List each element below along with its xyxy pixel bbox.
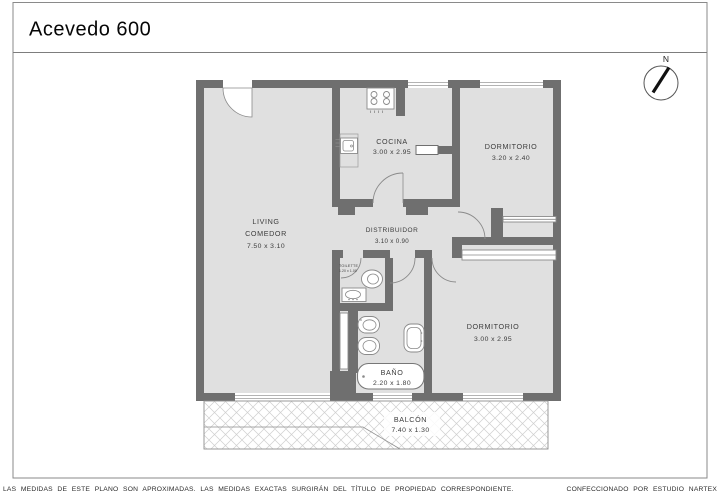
wall-corner-mass bbox=[330, 371, 356, 393]
duct-shaft bbox=[340, 313, 348, 369]
floorplan-page: Acevedo 600 N bbox=[0, 0, 720, 497]
wall-jamb-right bbox=[406, 207, 428, 215]
wall-cocina-dormitorio1 bbox=[452, 88, 460, 207]
compass-circle bbox=[644, 66, 678, 100]
label-dormitorio1-dims: 3.20 x 2.40 bbox=[492, 155, 530, 162]
label-dormitorio1: DORMITORIO bbox=[485, 142, 538, 151]
window-dormitorio2 bbox=[463, 393, 523, 401]
label-living-dims: 7.50 x 3.10 bbox=[247, 243, 285, 250]
toilette-sink bbox=[342, 288, 366, 302]
wall-cocina-south-east bbox=[403, 199, 452, 207]
wall-toilette-bottom bbox=[340, 303, 393, 311]
toilette-wc bbox=[362, 270, 383, 288]
wall-corner-block bbox=[452, 245, 462, 258]
footer-disclaimer: LAS MEDIDAS DE ESTE PLANO SON APROXIMADA… bbox=[3, 484, 514, 493]
footer-credit: CONFECCIONADO POR ESTUDIO NARTEX bbox=[567, 486, 718, 493]
sliding-door-cocina bbox=[416, 146, 438, 155]
wall-dormitorio1-dormitorio2 bbox=[452, 237, 561, 245]
bathroom-sink bbox=[404, 324, 424, 352]
wall-sliding-door-stub bbox=[438, 146, 452, 154]
wall-living-cocina bbox=[332, 88, 340, 207]
wall-jamb-left bbox=[338, 207, 355, 215]
label-living-2: COMEDOR bbox=[245, 229, 287, 238]
label-living-1: LIVING bbox=[252, 217, 279, 226]
label-dormitorio2-dims: 3.00 x 2.95 bbox=[474, 336, 512, 343]
footer: LAS MEDIDAS DE ESTE PLANO SON APROXIMADA… bbox=[3, 484, 717, 493]
wall-cocina-south-west bbox=[332, 199, 373, 207]
closet-dormitorio1 bbox=[503, 217, 556, 223]
bathroom-bidet bbox=[358, 317, 380, 334]
wall-cocina-column bbox=[396, 88, 405, 116]
label-dormitorio2: DORMITORIO bbox=[467, 322, 520, 331]
window-cocina bbox=[408, 80, 448, 88]
wall-hall-south-2 bbox=[363, 250, 390, 258]
wall-hall-south-1 bbox=[332, 250, 343, 258]
page-title: Acevedo 600 bbox=[29, 19, 151, 41]
label-toilette: TOILETTE bbox=[339, 264, 358, 268]
label-balcon-dims: 7.40 x 1.30 bbox=[391, 427, 429, 434]
label-bano-dims: 2.20 x 1.80 bbox=[373, 380, 411, 387]
outer-wall-left bbox=[196, 80, 204, 401]
window-dormitorio1 bbox=[480, 80, 543, 88]
north-label: N bbox=[663, 54, 669, 64]
balcony-hatch bbox=[204, 401, 548, 449]
label-distribuidor-dims: 3.10 x 0.90 bbox=[375, 238, 409, 245]
label-cocina: COCINA bbox=[376, 137, 408, 146]
label-distribuidor: DISTRIBUIDOR bbox=[366, 227, 419, 234]
wall-closet-stub-dorm1 bbox=[491, 208, 503, 237]
window-bano bbox=[373, 393, 412, 401]
kitchen-stove bbox=[367, 88, 394, 113]
label-bano: BAÑO bbox=[381, 368, 404, 377]
floorplan-drawing: Acevedo 600 N bbox=[0, 0, 720, 497]
compass: N bbox=[644, 54, 678, 100]
wall-hall-south-3 bbox=[415, 250, 432, 258]
wall-bano-left bbox=[348, 311, 358, 373]
label-balcon: BALCÓN bbox=[394, 415, 427, 424]
closet-dormitorio2 bbox=[462, 250, 556, 260]
label-cocina-dims: 3.00 x 2.95 bbox=[373, 149, 411, 156]
wall-bano-dormitorio2 bbox=[424, 258, 432, 393]
bathroom-toilet bbox=[358, 338, 380, 355]
balcony-area bbox=[204, 401, 548, 449]
label-toilette-dims: 1.20 x 1.00 bbox=[339, 269, 357, 273]
window-living bbox=[235, 393, 330, 401]
